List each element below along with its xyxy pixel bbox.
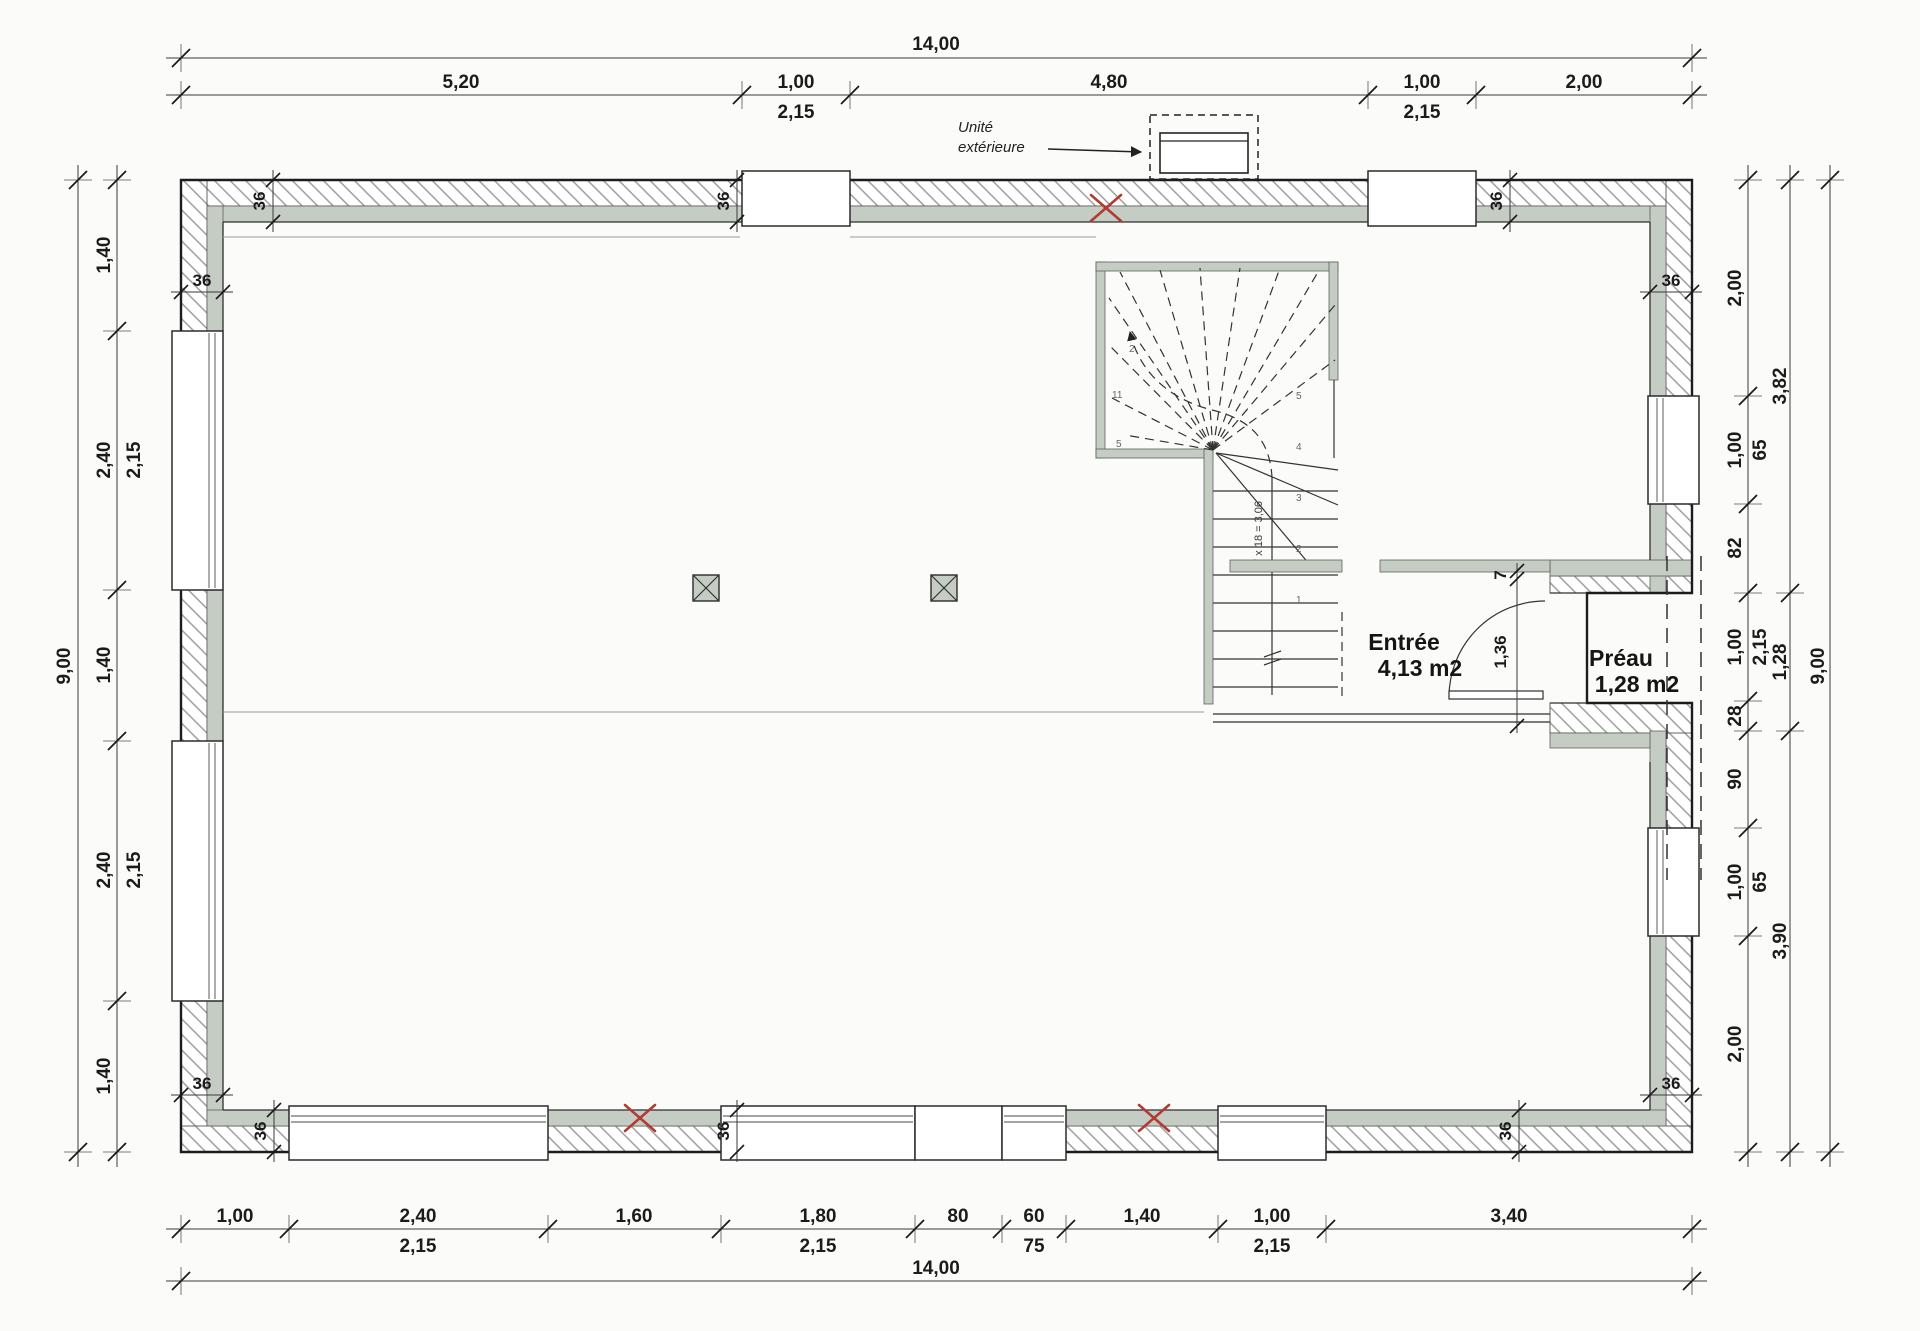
window-top-2 (1368, 171, 1476, 226)
floor-edge-band-2 (1380, 560, 1550, 572)
stair-upper-flight-dashed (1109, 268, 1335, 450)
wall-thickness-label: 36 (714, 192, 733, 211)
exterior-unit-label-line1: Unité (958, 119, 993, 136)
stair-number: 11 (1112, 390, 1123, 401)
wall-thickness-label: 36 (1662, 271, 1681, 290)
exterior-unit (1160, 133, 1248, 173)
dim-sublabel: 2,15 (124, 851, 145, 888)
preau-label: Préau (1589, 645, 1653, 671)
interior-finish-lines (223, 237, 1204, 712)
wall-thickness-label: 36 (193, 271, 212, 290)
staircase: 17 x 18 = 3,06 2 11 5 5 4 3 2 1 (1096, 262, 1342, 704)
dim-label: 14,00 (912, 34, 960, 55)
dim-label: 9,00 (1808, 648, 1829, 685)
stair-number: 1 (1296, 595, 1302, 606)
dim-label: 2,40 (94, 852, 115, 889)
entree-area: 7 1,36 Entrée 4,13 m2 (1213, 560, 1587, 733)
stair-number: 4 (1296, 442, 1302, 453)
preau-area-label: 1,28 m2 (1595, 671, 1679, 697)
door-dimension: 7 1,36 (1491, 563, 1524, 733)
exterior-unit-arrow (1048, 149, 1141, 152)
window-left-2 (172, 741, 223, 1001)
wall-thickness-label: 36 (714, 1122, 733, 1141)
wall-thickness-dimensions: 36 36 36 36 36 36 36 36 36 (171, 170, 1702, 1162)
dim-label: 3,40 (1491, 1206, 1528, 1227)
dim-label: 1,00 (217, 1206, 254, 1227)
wall-thickness-label: 36 (193, 1074, 212, 1093)
wall-insulation-band (207, 206, 1692, 1126)
window-top-1 (742, 171, 850, 226)
dim-sublabel: 65 (1750, 439, 1771, 461)
dim-label: 1,00 (778, 72, 815, 93)
dim-label: 9,00 (54, 648, 75, 685)
stair-number: 2 (1296, 544, 1302, 555)
building-walls (181, 180, 1692, 1152)
dim-label: 2,40 (94, 442, 115, 479)
stair-number: 2 (1129, 344, 1135, 355)
dimension-chain-right: 2,00 1,00 65 82 1,00 2,15 28 90 1,00 65 … (1725, 165, 1844, 1167)
dim-label: 80 (947, 1206, 968, 1227)
dim-label: 3,90 (1770, 923, 1791, 960)
dim-label: 1,40 (94, 1058, 115, 1095)
dim-sublabel: 2,15 (778, 102, 815, 123)
entree-area-label: 4,13 m2 (1378, 655, 1462, 681)
wall-thickness-label: 36 (250, 192, 269, 211)
dim-label: 90 (1725, 768, 1746, 789)
wall-thickness-label: 36 (1487, 192, 1506, 211)
structural-columns (693, 575, 957, 601)
floor-plan: 17 x 18 = 3,06 2 11 5 5 4 3 2 1 7 (0, 0, 1920, 1331)
wall-thickness-label: 36 (1662, 1074, 1681, 1093)
dimension-chain-bottom: 1,00 2,40 2,15 1,60 1,80 2,15 80 60 75 1… (166, 1206, 1707, 1295)
dim-label: 2,00 (1566, 72, 1603, 93)
wall-hatch-masonry (181, 180, 1692, 1152)
wall-thickness-label: 36 (251, 1122, 270, 1141)
stair-walls (1096, 262, 1338, 704)
window-right-1 (1648, 396, 1699, 504)
window-bottom-4 (1002, 1106, 1066, 1160)
dim-sublabel: 65 (1750, 871, 1771, 893)
stair-number: 5 (1116, 439, 1122, 450)
dim-label: 2,40 (400, 1206, 437, 1227)
building-outer-contour (181, 180, 1692, 1152)
dim-label: 3,82 (1770, 368, 1791, 405)
window-left-1 (172, 331, 223, 590)
dim-label: 1,40 (94, 237, 115, 274)
dim-label: 1,00 (1725, 432, 1746, 469)
dim-sublabel: 2,15 (1750, 628, 1771, 665)
stair-number: 3 (1296, 493, 1302, 504)
plan-sheet: 17 x 18 = 3,06 2 11 5 5 4 3 2 1 7 (0, 0, 1920, 1331)
red-cross-marks (625, 195, 1169, 1131)
dimension-chain-left: 1,40 2,40 2,15 1,40 2,40 2,15 1,40 9,00 (54, 165, 145, 1167)
floor-edge-band-1 (1230, 560, 1342, 572)
dim-label: 1,00 (1725, 629, 1746, 666)
dim-sublabel: 2,15 (1404, 102, 1441, 123)
exterior-unit-label-line2: extérieure (958, 139, 1025, 156)
window-right-2 (1648, 828, 1699, 936)
door-leaf (1449, 691, 1543, 699)
stair-number: 5 (1296, 391, 1302, 402)
dimension-chain-top: 14,00 5,20 1,00 2,15 4,80 1,00 2,15 2,00 (166, 34, 1707, 123)
entree-label: Entrée (1368, 629, 1440, 655)
column-2 (931, 575, 957, 601)
exterior-unit-annotation: Unité extérieure (958, 115, 1258, 179)
window-bottom-1 (289, 1106, 548, 1160)
dim-label: 14,00 (912, 1258, 960, 1279)
window-bottom-5 (1218, 1106, 1326, 1160)
wall-openings (172, 171, 1699, 1160)
dim-sublabel: 75 (1023, 1236, 1045, 1257)
door-step-dim: 7 (1491, 570, 1510, 579)
dim-label: 1,00 (1254, 1206, 1291, 1227)
dim-label: 1,00 (1404, 72, 1441, 93)
dim-label: 1,40 (94, 647, 115, 684)
dim-label: 1,28 (1770, 644, 1791, 681)
entrance-door (1449, 593, 1587, 703)
dim-label: 4,80 (1091, 72, 1128, 93)
dim-label: 28 (1725, 705, 1746, 726)
dim-label: 2,00 (1725, 1026, 1746, 1063)
column-1 (693, 575, 719, 601)
opening-bottom-3 (915, 1106, 1002, 1160)
dim-sublabel: 2,15 (1254, 1236, 1291, 1257)
dim-label: 1,60 (616, 1206, 653, 1227)
dim-sublabel: 2,15 (124, 441, 145, 478)
door-height-dim: 1,36 (1491, 635, 1510, 668)
window-bottom-2 (721, 1106, 915, 1160)
dim-label: 5,20 (443, 72, 480, 93)
dim-label: 60 (1023, 1206, 1044, 1227)
wall-thickness-label: 36 (1496, 1122, 1515, 1141)
dim-sublabel: 2,15 (400, 1236, 437, 1257)
dim-label: 1,80 (800, 1206, 837, 1227)
dim-label: 2,00 (1725, 270, 1746, 307)
dim-label: 82 (1725, 537, 1746, 558)
dim-label: 1,00 (1725, 864, 1746, 901)
dim-sublabel: 2,15 (800, 1236, 837, 1257)
dim-label: 1,40 (1124, 1206, 1161, 1227)
